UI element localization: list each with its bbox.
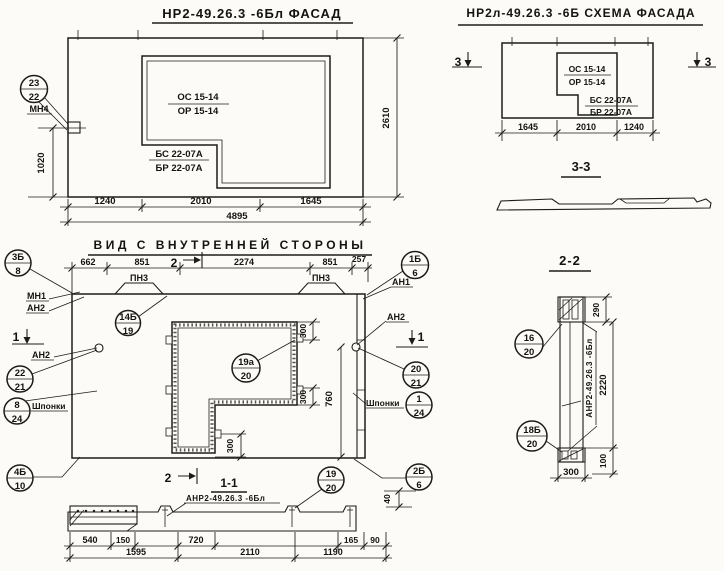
dim-720: 720 — [188, 535, 203, 545]
callout-8-24: 8 24 — [4, 398, 30, 425]
dim-2010: 2010 — [190, 196, 211, 207]
inner-title: ВИД С ВНУТРЕННЕЙ СТОРОНЫ — [94, 237, 367, 252]
schema-window-mark-2: ОР 15-14 — [569, 77, 606, 87]
dim-1020: 1020 — [36, 152, 47, 173]
loop-label: ПН3 — [130, 273, 148, 283]
dim-2110: 2110 — [240, 547, 260, 557]
svg-text:100: 100 — [598, 454, 608, 468]
dim-2274: 2274 — [234, 257, 254, 267]
svg-text:24: 24 — [414, 408, 425, 419]
facade-panel-outline — [68, 38, 363, 197]
label-mn1: МН1 — [27, 291, 46, 301]
cut-arrow-down — [24, 337, 31, 344]
svg-text:16: 16 — [524, 333, 535, 344]
svg-text:1: 1 — [416, 394, 422, 405]
label-an2-left-top: АН2 — [27, 303, 45, 313]
facade-dim-1020: 1020 — [28, 125, 86, 201]
svg-text:1: 1 — [13, 330, 20, 344]
svg-text:300: 300 — [563, 467, 579, 478]
svg-text:300: 300 — [225, 439, 235, 453]
cut-mark-2-bottom: 2 — [165, 468, 197, 485]
svg-text:20: 20 — [326, 483, 337, 494]
dim-150: 150 — [116, 535, 130, 545]
svg-text:3Б: 3Б — [12, 252, 24, 263]
schema-dims-bottom: 1645 2010 1240 — [495, 120, 660, 141]
svg-text:300: 300 — [298, 390, 308, 404]
dim-1595: 1595 — [126, 547, 146, 557]
blueprint-canvas: НР2-49.26.3 -6Бл ФАСАД ОС 15-14 ОР 15-14… — [0, 0, 724, 571]
dim-100: 100 — [592, 448, 618, 478]
drawing-sheet: НР2-49.26.3 -6Бл ФАСАД ОС 15-14 ОР 15-14… — [0, 0, 724, 571]
svg-text:21: 21 — [411, 378, 422, 389]
dim-1645: 1645 — [300, 196, 322, 207]
svg-text:14Б: 14Б — [119, 312, 137, 323]
dim-2610: 2610 — [381, 107, 392, 128]
cut-mark-1-right: 1 — [396, 330, 428, 347]
facade-window-mark-1: ОС 15-14 — [177, 92, 219, 103]
schema-sill-mark-1: БС 22-07А — [590, 95, 632, 105]
callout-pos: 23 — [29, 78, 40, 89]
dim-1645: 1645 — [518, 122, 538, 132]
dim-257: 257 — [352, 254, 366, 264]
svg-text:19а: 19а — [238, 357, 255, 368]
schema-title: НР2л-49.26.3 -6Б СХЕМА ФАСАДА — [466, 6, 695, 20]
svg-text:20: 20 — [524, 347, 535, 358]
dim-662: 662 — [80, 257, 95, 267]
svg-text:1: 1 — [418, 330, 425, 344]
svg-text:20: 20 — [411, 364, 422, 375]
dim-540: 540 — [82, 535, 97, 545]
dim-1240: 1240 — [624, 122, 644, 132]
svg-text:10: 10 — [15, 481, 26, 492]
facade-anchor-detail — [68, 122, 80, 133]
callout-23-22: 23 22 — [21, 76, 48, 104]
svg-text:2: 2 — [171, 256, 178, 270]
schema-sill-mark-2: БР 22-07А — [590, 107, 632, 117]
svg-text:4Б: 4Б — [14, 467, 26, 478]
dims-1-1: 540 150 720 165 90 1595 2110 1190 — [64, 532, 392, 562]
svg-text:8: 8 — [15, 266, 20, 277]
schema-window-mark-1: ОС 15-14 — [569, 64, 606, 74]
facade-view: НР2-49.26.3 -6Бл ФАСАД ОС 15-14 ОР 15-14… — [21, 6, 405, 226]
section-mark-3-right: 3 — [688, 52, 716, 69]
callout-14b-19: 14Б 19 — [116, 311, 141, 338]
facade-sill-mark-2: БР 22-07А — [156, 163, 203, 174]
lifting-loop-left: ПН3 — [115, 273, 163, 294]
section-3-3-profile — [497, 198, 711, 210]
label-an2-right: АН2 — [387, 312, 405, 322]
svg-text:6: 6 — [416, 480, 421, 491]
callout-16-20: 16 20 — [515, 330, 543, 358]
callout-2b-6: 2Б 6 — [406, 464, 432, 491]
label-an1: АН1 — [392, 277, 410, 287]
section-arrow-down — [465, 60, 472, 67]
dim-4895: 4895 — [226, 211, 248, 222]
svg-text:6: 6 — [412, 268, 417, 279]
svg-text:2220: 2220 — [598, 374, 609, 395]
callout-4b-10: 4Б 10 — [7, 465, 33, 492]
svg-text:1Б: 1Б — [409, 254, 421, 265]
dim-1240: 1240 — [94, 196, 115, 207]
section-3-3-title: 3-3 — [572, 159, 591, 174]
section-mark-3-left: 3 — [452, 52, 482, 69]
item-label-2-2: АНР2-49.26.3 -6Бл — [585, 338, 594, 417]
callout-19-20: 19 20 — [318, 467, 344, 494]
profile-2-2 — [558, 297, 585, 462]
svg-text:8: 8 — [14, 400, 19, 411]
callout-20-21: 20 21 — [403, 362, 429, 389]
svg-text:20: 20 — [241, 371, 252, 382]
facade-window-mark-2: ОР 15-14 — [178, 106, 219, 117]
svg-text:18Б: 18Б — [523, 425, 541, 436]
svg-text:760: 760 — [324, 391, 335, 407]
anchor-right — [352, 343, 360, 351]
svg-text:2: 2 — [165, 471, 172, 485]
cut-arrow-down — [409, 338, 416, 345]
callout-1b-6: 1Б 6 — [402, 252, 429, 280]
section-3-3: 3-3 — [497, 159, 711, 210]
svg-text:22: 22 — [15, 368, 26, 379]
label-keys-left: Шпонки — [32, 401, 65, 411]
section-1-1-title: 1-1 — [220, 476, 238, 490]
svg-text:21: 21 — [15, 382, 26, 393]
callout-1-24: 1 24 — [406, 392, 432, 419]
callout-22-21: 22 21 — [7, 366, 33, 393]
cut-mark-1-left: 1 — [12, 329, 44, 344]
facade-dim-2610: 2610 — [363, 35, 404, 201]
svg-text:40: 40 — [382, 494, 392, 504]
svg-text:19: 19 — [326, 469, 337, 480]
dim-165: 165 — [344, 535, 358, 545]
section-2-2-title: 2-2 — [559, 253, 581, 268]
dim-760: 760 — [324, 344, 345, 461]
callout-sheet: 22 — [29, 92, 40, 103]
dim-851-left: 851 — [134, 257, 149, 267]
profile-1-1 — [68, 506, 356, 531]
facade-dims-bottom: 1240 2010 1645 4895 — [60, 196, 371, 226]
cut-arrow-right — [189, 473, 196, 480]
schema-view: НР2л-49.26.3 -6Б СХЕМА ФАСАДА ОС 15-14 О… — [452, 6, 716, 141]
loop-label: ПН3 — [312, 273, 330, 283]
dim-300-s22: 300 — [550, 462, 592, 482]
dim-290: 290 — [583, 294, 612, 326]
svg-text:290: 290 — [591, 303, 601, 317]
dim-1190: 1190 — [323, 547, 343, 557]
svg-text:20: 20 — [527, 439, 538, 450]
lifting-loop-right: ПН3 — [298, 273, 345, 294]
cut-arrow-right — [194, 257, 201, 264]
facade-title: НР2-49.26.3 -6Бл ФАСАД — [162, 6, 341, 21]
callout-3b-8: 3Б 8 — [5, 250, 31, 277]
inner-opening — [166, 322, 303, 453]
dim-40: 40 — [382, 488, 416, 511]
svg-text:19: 19 — [123, 326, 134, 337]
item-label-1-1: АНР2-49.26.3 -6Бл — [186, 494, 265, 503]
dim-2010: 2010 — [576, 122, 596, 132]
label-keys-right: Шпонки — [366, 398, 399, 408]
svg-text:300: 300 — [298, 324, 308, 338]
section-arrow-down — [694, 60, 701, 67]
label-an2-left: АН2 — [32, 350, 50, 360]
section-2-2: 2-2 АНР2-49.26.3 -6Бл 290 2220 — [515, 253, 618, 482]
callout-18b-20: 18Б 20 — [517, 421, 547, 451]
facade-sill-mark-1: БС 22-07А — [155, 149, 203, 160]
dim-90: 90 — [370, 535, 380, 545]
callout-19a-20: 19а 20 — [232, 354, 260, 382]
svg-text:24: 24 — [12, 414, 23, 425]
anchor-label-mn4: МН4 — [29, 104, 48, 114]
inner-view: ВИД С ВНУТРЕННЕЙ СТОРОНЫ 662 851 2274 85… — [4, 237, 432, 511]
svg-text:2Б: 2Б — [413, 466, 425, 477]
dim-851-right: 851 — [322, 257, 337, 267]
